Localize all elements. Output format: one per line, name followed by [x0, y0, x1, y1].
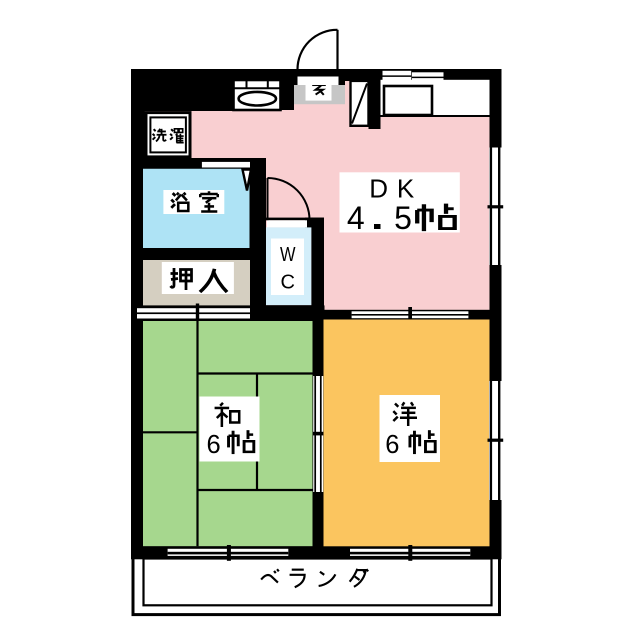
svg-text:D: D — [369, 174, 388, 204]
svg-text:5: 5 — [394, 200, 412, 236]
svg-text:4: 4 — [347, 200, 365, 236]
svg-text:W: W — [280, 244, 296, 266]
svg-text:6: 6 — [385, 431, 399, 459]
svg-text:6: 6 — [207, 431, 221, 459]
svg-text:C: C — [280, 272, 294, 294]
